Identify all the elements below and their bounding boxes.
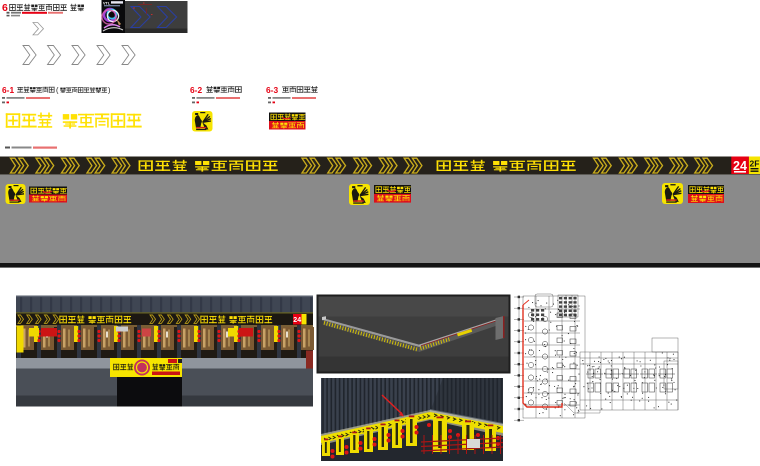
svg-text:24: 24 bbox=[293, 317, 301, 324]
svg-text:VTL: VTL bbox=[103, 2, 111, 6]
svg-text:6-1: 6-1 bbox=[2, 85, 14, 95]
svg-text:2F: 2F bbox=[750, 159, 760, 169]
svg-text:24: 24 bbox=[733, 159, 747, 173]
svg-text:6-3: 6-3 bbox=[266, 85, 278, 95]
svg-text:6-2: 6-2 bbox=[190, 85, 202, 95]
